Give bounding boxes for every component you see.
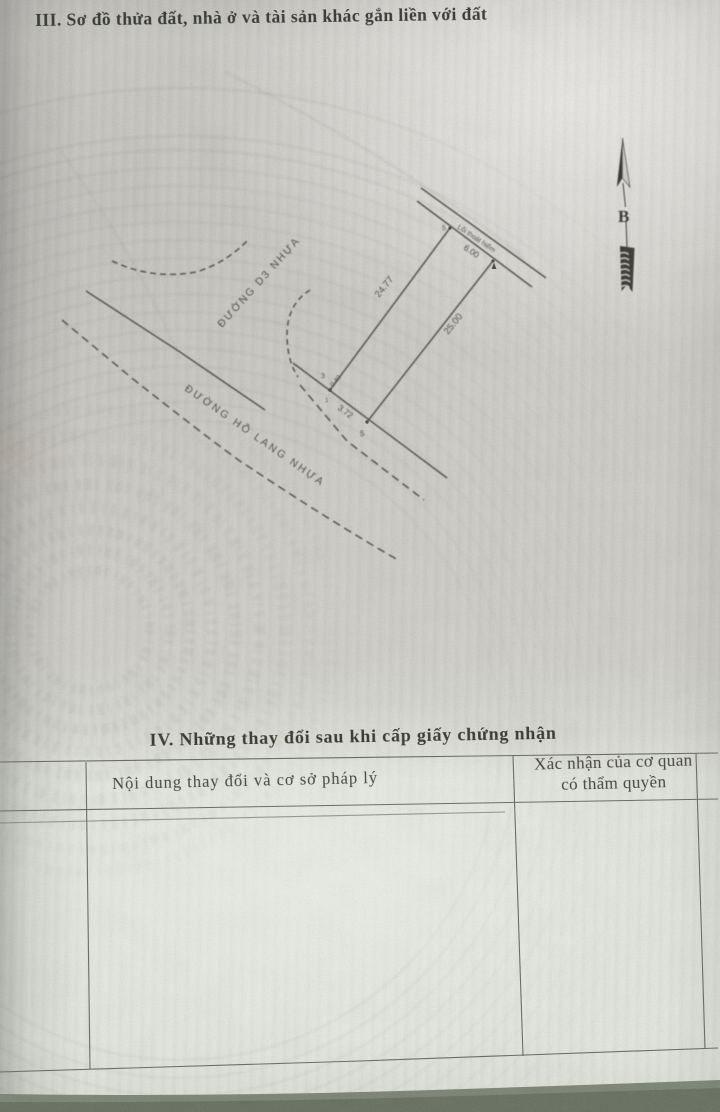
svg-text:3: 3 [321, 373, 325, 380]
svg-text:B: B [618, 207, 629, 226]
svg-text:3.72: 3.72 [336, 403, 355, 421]
svg-text:25.00: 25.00 [442, 311, 466, 336]
svg-text:1: 1 [325, 397, 329, 404]
svg-text:5: 5 [442, 225, 446, 232]
svg-text:ĐƯỜNG HỒ LANG NHỰA: ĐƯỜNG HỒ LANG NHỰA [182, 382, 328, 489]
svg-text:5: 5 [360, 429, 365, 438]
svg-text:6.00: 6.00 [462, 242, 482, 260]
